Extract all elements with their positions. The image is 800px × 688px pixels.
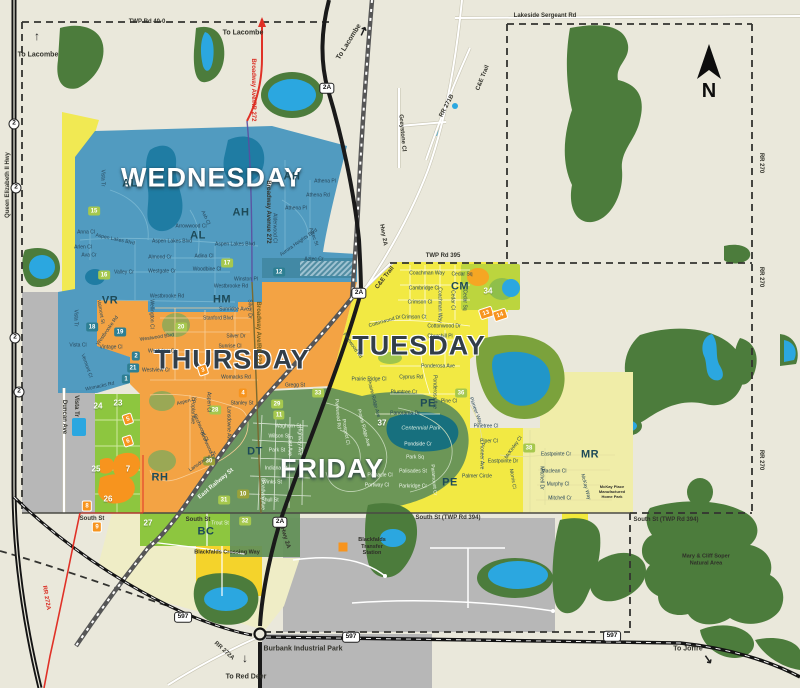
district-code-label: AH	[284, 172, 301, 183]
direction-arrow-icon: ↑	[259, 15, 265, 27]
street-label: Wellington Cl	[149, 299, 154, 328]
road-label: Lakeside Sergeant Rd	[514, 13, 577, 19]
zone-number-plain: 7	[123, 464, 132, 475]
road-label: TWP Rd 395	[426, 253, 461, 259]
zone-number-marker-teal: 21	[127, 364, 139, 373]
street-label: Stanley St	[231, 402, 254, 407]
district-code-label: AH	[233, 208, 250, 219]
poi-label: Blackfalds Transfer Station	[358, 537, 386, 557]
collection-zone-map: N WEDNESDAYTHURSDAYTUESDAYFRIDAYALAHAHAL…	[0, 0, 800, 688]
street-label: Aspen Lakes Blvd	[215, 243, 255, 248]
street-label: Cambridge Cl	[409, 287, 440, 292]
district-code-label: HM	[213, 295, 231, 306]
zone-number-marker-teal: 19	[114, 328, 126, 337]
zone-number-plain: 27	[141, 518, 155, 529]
road-label: South St (TWP Rd 394)	[634, 517, 699, 523]
street-label: Cedar Sq	[451, 273, 472, 278]
zone-number-marker-green: 29	[271, 400, 283, 409]
street-label: Woodbine Cl	[193, 268, 222, 273]
zone-number-marker-orange: 8	[82, 501, 92, 512]
street-label: Almond Cr	[148, 256, 172, 261]
street-label: Winston Pl	[234, 278, 258, 283]
street-label: Eastpointe Dr	[488, 460, 518, 465]
street-label: Valley Cr	[114, 271, 134, 276]
street-label: Park Sq	[406, 456, 424, 461]
day-zone-label: WEDNESDAY	[121, 165, 303, 192]
poi-label: Centennial Park	[401, 426, 440, 433]
street-label: Crimson Ct	[401, 316, 426, 321]
street-label: Panorama Dr	[390, 412, 420, 417]
street-label: Lansdowne Ave	[226, 406, 231, 441]
street-label: Maclean Cl	[541, 470, 566, 475]
highway-shield: 2	[14, 387, 25, 398]
highway-shield: 597	[342, 632, 360, 643]
compass-north-label: N	[702, 81, 716, 101]
street-label: Pinnacle Cl	[367, 474, 392, 479]
highway-shield: 2A	[272, 517, 287, 528]
zone-number-plain: 23	[111, 398, 125, 409]
zone-number-plain: 34	[481, 286, 495, 297]
road-label: South St	[186, 517, 211, 523]
zone-number-marker-orange: 4	[239, 389, 247, 398]
street-label: Westbrooke Rd	[150, 295, 184, 300]
street-label: Palmer Circle	[462, 475, 492, 480]
district-code-label: RH	[152, 473, 169, 484]
street-label: Aspen Cl	[206, 392, 211, 412]
street-label: Gregg St	[285, 384, 305, 389]
zone-number-marker-green: 20	[175, 323, 187, 332]
zone-number-marker-green: 38	[523, 444, 535, 453]
zone-number-plain: 26	[101, 494, 115, 505]
street-label: Vintage Cl	[100, 346, 123, 351]
zone-number-plain: 24	[91, 401, 105, 412]
street-label: Eastpointe Cr	[541, 453, 571, 458]
district-code-label: PE	[442, 478, 458, 489]
street-label: Westbrooke Rd	[214, 285, 248, 290]
street-label: Broadway Ave	[260, 478, 265, 510]
zone-number-plain: 37	[375, 418, 389, 429]
road-label: RR 270	[758, 267, 764, 287]
poi-label: Mary & Cliff Soper Natural Area	[682, 553, 730, 566]
highway-shield: 2	[9, 119, 20, 130]
zone-number-marker-green: 31	[218, 496, 230, 505]
day-zone-label: THURSDAY	[154, 347, 310, 374]
poi-label: Blackfalds Crossing Way	[194, 550, 260, 557]
street-label: Palisades St	[399, 470, 427, 475]
poi-label: McKay Place Manufactured Home Park	[599, 485, 625, 499]
street-label: Indiana St	[265, 467, 288, 472]
street-label: East Ave	[287, 436, 292, 456]
street-label: Churchill Pl	[427, 335, 452, 340]
street-label: Stanford Blvd	[203, 317, 233, 322]
street-label: Cedar Cl	[450, 290, 455, 310]
district-code-label: AL	[122, 179, 138, 190]
zone-number-marker-green: 36	[455, 389, 467, 398]
street-label: Park St	[269, 449, 285, 454]
district-code-label: AL	[190, 231, 206, 242]
street-label: Aztec Cr	[304, 258, 323, 263]
district-code-label: DT	[247, 447, 263, 458]
road-label: RR 270	[758, 153, 764, 173]
direction-label: To Lacombe	[223, 30, 264, 37]
street-label: Parkridge Cr	[399, 485, 427, 490]
street-label: Highway Ave	[297, 427, 302, 456]
street-label: Murphy Cl	[547, 483, 570, 488]
road-label: Broadway Avenue 272	[265, 180, 271, 243]
zone-number-marker-olive: 10	[237, 490, 249, 499]
street-label: Silver Dr	[226, 335, 245, 340]
street-label: Cottonwood Dr	[427, 325, 460, 330]
zone-number-marker-teal: 12	[273, 268, 285, 277]
road-label: Vista Tr	[73, 395, 79, 417]
street-label: Mitchell Cr	[548, 497, 572, 502]
district-code-label: MR	[581, 450, 599, 461]
street-label: Silver Dr	[247, 299, 252, 318]
direction-label: To Lacombe	[18, 52, 59, 59]
zone-number-marker-green: 11	[273, 411, 284, 420]
street-label: Arlen Cl	[74, 246, 92, 251]
street-label: Portway Cl	[365, 484, 389, 489]
zone-number-marker-teal: 18	[86, 323, 98, 332]
street-label: Arrowwood Cl	[175, 225, 206, 230]
zone-number-marker-teal: 2	[132, 352, 140, 361]
street-label: Ponderosa Ave	[421, 365, 455, 370]
street-label: Westview Cr	[148, 350, 176, 355]
street-label: Westgate Cr	[148, 270, 176, 275]
street-label: Pondside Cr	[404, 443, 432, 448]
road-label: Broadway Ave/RR 272	[255, 302, 261, 365]
highway-shield: 2A	[351, 288, 366, 299]
street-label: Pine Cl	[441, 400, 457, 405]
street-label: Pioneer Ave	[479, 443, 484, 470]
street-label: Vista Tr	[100, 170, 105, 187]
zone-number-marker-green: 32	[239, 517, 251, 526]
transfer-station-icon	[339, 543, 348, 552]
road-label: Broadway Ave/RR 272	[250, 59, 256, 122]
street-label: Womacks Rd	[221, 376, 251, 381]
road-label: TWP Rd 40-0	[129, 19, 166, 25]
zone-number-marker-orange: 9	[92, 522, 102, 533]
district-code-label: BC	[198, 527, 215, 538]
street-label: Athena Rd	[306, 194, 330, 199]
street-label: Ava Cr	[81, 254, 96, 259]
street-label: Alderwood Cl	[272, 213, 277, 243]
street-label: Mitchell Dr	[539, 466, 544, 490]
road-label: South St	[80, 516, 105, 522]
street-label: Vista Tr	[73, 310, 78, 327]
street-label: Westview Cr	[142, 369, 170, 374]
highway-shield: 2	[11, 183, 22, 194]
street-label: Trout St	[211, 522, 229, 527]
road-label: Duncan Ave	[61, 400, 67, 434]
street-label: Coachman Way	[409, 272, 444, 277]
street-label: Coachman Way	[437, 287, 442, 322]
street-label: Sunrise Cl	[218, 345, 241, 350]
zone-number-marker-green: 17	[221, 259, 233, 268]
direction-label: To Joffre	[673, 646, 702, 653]
day-zone-label: TUESDAY	[352, 333, 486, 360]
street-label: Vista Cl	[69, 344, 86, 349]
highway-shield: 2	[10, 333, 21, 344]
zone-number-marker-teal: 1	[122, 375, 130, 384]
highway-shield: 2A	[319, 83, 334, 94]
street-label: Aspen Lakes Blvd	[152, 240, 192, 245]
street-label: Cedar Sq	[462, 289, 467, 310]
highway-shield: 597	[603, 631, 621, 642]
direction-arrow-icon: ↓	[242, 652, 248, 664]
zone-number-marker-green: 33	[312, 389, 324, 398]
street-label: Anna Cl	[77, 231, 95, 236]
highway-shield: 597	[174, 612, 192, 623]
street-label: Ponderosa Ave	[432, 375, 437, 409]
road-label: South St (TWP Rd 394)	[416, 515, 481, 521]
street-label: Plumtree Cr	[391, 391, 418, 396]
street-label: Crimson Cl	[408, 301, 433, 306]
street-label: Athena Pl	[314, 180, 336, 185]
direction-label: To Red Deer	[226, 674, 267, 681]
street-label: Adina Cl	[195, 255, 214, 260]
zone-number-marker-green: 15	[88, 207, 100, 216]
road-label: RR 270	[758, 450, 764, 470]
street-label: Athena Pl	[285, 207, 307, 212]
direction-arrow-icon: ↑	[34, 30, 40, 42]
zone-number-plain: 25	[89, 464, 103, 475]
street-label: Pinetree Cl	[474, 425, 499, 430]
street-label: Cyprus Rd	[399, 376, 423, 381]
street-label: Sunridge Ave	[219, 308, 249, 313]
road-label: Burbank Industrial Park	[264, 646, 343, 653]
direction-arrow-icon: ↘	[702, 652, 714, 666]
zone-number-marker-green: 16	[98, 271, 110, 280]
district-code-label: VR	[102, 296, 118, 307]
